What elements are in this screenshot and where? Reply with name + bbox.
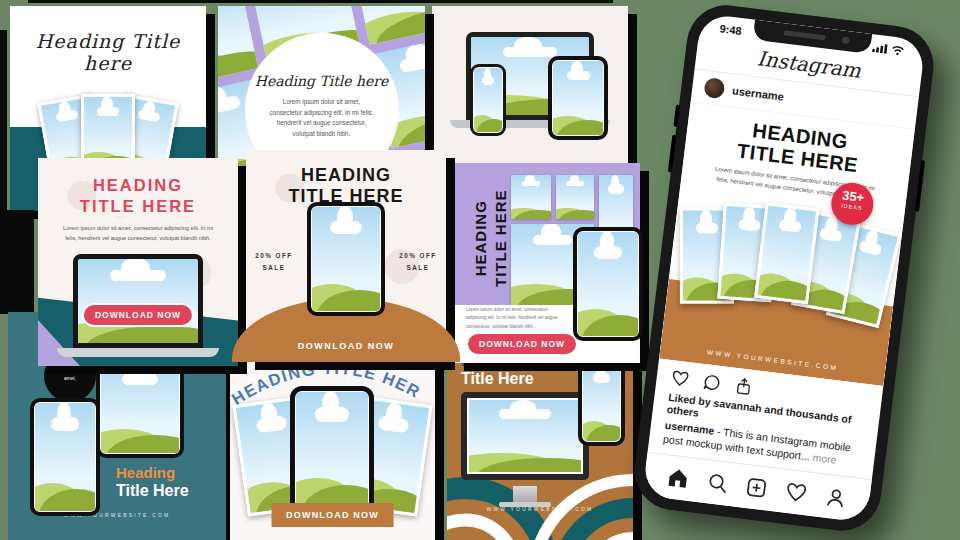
script-heading: Heading Title here bbox=[10, 30, 206, 74]
template-card-mid-center: HEADING TITLE HERE 20% OFF SALE 20% OFF … bbox=[246, 150, 446, 362]
mute-switch bbox=[673, 105, 680, 127]
new-post-icon[interactable] bbox=[744, 475, 770, 501]
laptop-base bbox=[57, 348, 219, 357]
cutoff-card-edge-mid-left bbox=[0, 210, 34, 314]
card-heading: Title Here bbox=[461, 370, 534, 388]
download-now-button[interactable]: DOWNLOAD NOW bbox=[246, 341, 446, 351]
tablet-mockup bbox=[307, 202, 385, 316]
phone-mockup-small bbox=[470, 64, 506, 136]
tablet-mockup bbox=[30, 398, 100, 516]
body-text: Lorem ipsum dolor sit amet, consectetur … bbox=[245, 97, 399, 140]
cutoff-card-edge-left bbox=[0, 30, 7, 212]
download-now-button[interactable]: DOWNLOAD NOW bbox=[466, 332, 578, 356]
tablet-mockup bbox=[573, 227, 643, 341]
body-text: Lorem ipsum dolor sit amet, consectetur … bbox=[466, 306, 564, 331]
website-url: WWW.YOURWEBSITE.COM bbox=[447, 506, 633, 512]
heart-icon[interactable] bbox=[670, 368, 691, 389]
body-text: Lorem ipsum dolor sit amet, consectetur … bbox=[38, 224, 238, 244]
more-link[interactable]: more bbox=[809, 451, 837, 466]
power-button bbox=[915, 160, 925, 212]
phone-screen: 9:48 bbox=[642, 13, 926, 523]
monitor-stand bbox=[513, 486, 537, 503]
grid-photo bbox=[511, 175, 551, 219]
tablet-mockup bbox=[290, 386, 374, 514]
post-username[interactable]: username bbox=[732, 84, 785, 102]
home-icon[interactable] bbox=[666, 465, 692, 491]
card-heading-accent: Heading bbox=[116, 464, 175, 481]
cutoff-card-edge-top bbox=[28, 0, 613, 3]
phone-mockup-small bbox=[578, 358, 625, 446]
download-now-button[interactable]: DOWNLOAD NOW bbox=[271, 503, 394, 527]
grid-photo bbox=[556, 175, 594, 219]
status-time: 9:48 bbox=[719, 22, 742, 37]
search-icon[interactable] bbox=[705, 470, 731, 496]
post-image[interactable]: HEADING TITLE HERE Lorem ipsum dolor sit… bbox=[659, 102, 915, 386]
tablet-mockup bbox=[96, 356, 184, 458]
wifi-icon bbox=[891, 45, 905, 57]
share-icon[interactable] bbox=[733, 376, 754, 397]
promo-text-right: 20% OFF SALE bbox=[393, 250, 443, 274]
profile-icon[interactable] bbox=[823, 485, 849, 511]
iphone-mockup: 9:48 bbox=[630, 1, 938, 535]
mockup-collage-canvas: Heading Title here Heading Title here Lo… bbox=[0, 0, 960, 540]
phone-body: 9:48 bbox=[630, 1, 938, 535]
card-heading: Title Here bbox=[116, 482, 189, 500]
template-card-mid-left: HEADING TITLE HERE Lorem ipsum dolor sit… bbox=[38, 158, 238, 366]
volume-button bbox=[668, 134, 677, 172]
comment-icon[interactable] bbox=[701, 372, 722, 393]
signal-bars-icon bbox=[872, 42, 888, 54]
template-card-bottom-center: HEADING TITLE HERE DOWNLOAD NOW bbox=[230, 346, 435, 540]
script-heading: Heading Title here bbox=[245, 73, 399, 89]
download-now-button[interactable]: DOWNLOAD NOW bbox=[82, 303, 194, 327]
activity-heart-icon[interactable] bbox=[783, 480, 809, 506]
laptop-mockup: DOWNLOAD NOW bbox=[73, 254, 203, 348]
avatar[interactable] bbox=[703, 77, 725, 99]
promo-text-left: 20% OFF SALE bbox=[249, 250, 299, 274]
template-card-mid-right: HEADING TITLE HERE Lorem ipsum dolor sit… bbox=[455, 163, 640, 363]
desktop-monitor-mockup bbox=[461, 392, 589, 480]
template-card-bottom-right: Heading Title Here WWW.YOURWEBSITE.COM bbox=[447, 346, 633, 540]
tablet-mockup bbox=[548, 56, 608, 140]
vertical-heading: HEADING TITLE HERE bbox=[471, 164, 512, 312]
card-heading: HEADING TITLE HERE bbox=[38, 175, 238, 218]
